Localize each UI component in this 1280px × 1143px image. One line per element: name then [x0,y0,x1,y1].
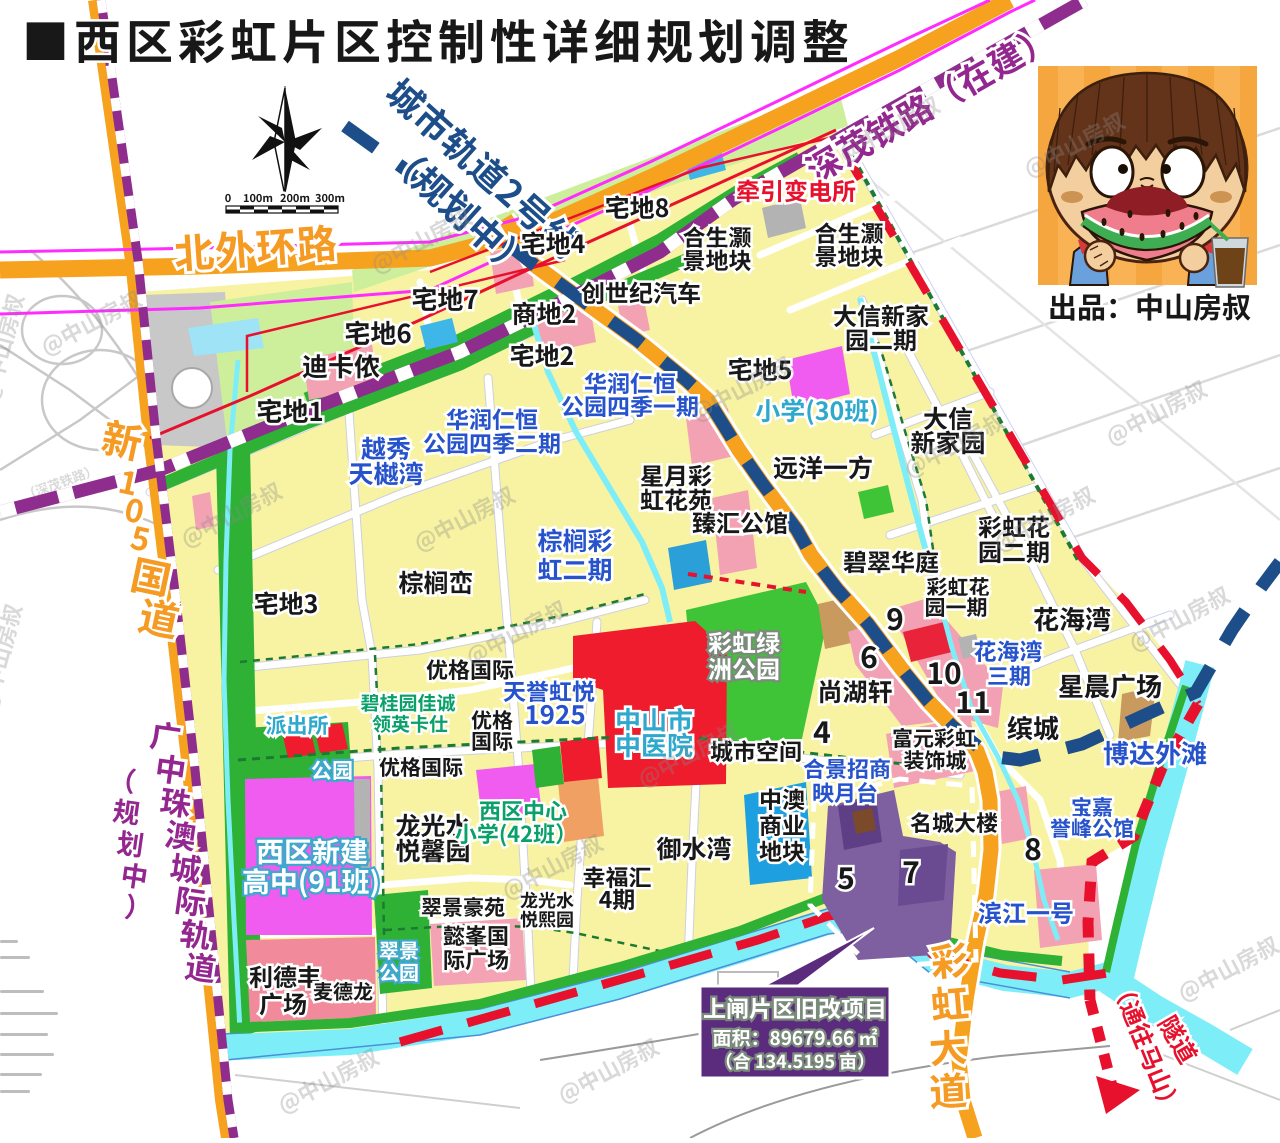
svg-text:广场: 广场 [259,985,307,1020]
svg-text:远洋一方: 远洋一方 [773,449,873,485]
svg-text:7: 7 [902,848,920,892]
svg-text:名城大楼: 名城大楼 [910,806,998,838]
svg-text:（合 134.5195 亩）: （合 134.5195 亩） [715,1048,875,1074]
svg-text:洲公园: 洲公园 [708,650,780,685]
svg-text:优格国际: 优格国际 [379,752,463,782]
svg-text:地块: 地块 [759,833,805,867]
svg-text:尚湖轩: 尚湖轩 [817,673,892,709]
svg-text:牵引变电所: 牵引变电所 [736,172,856,207]
svg-text:园二期: 园二期 [845,321,917,356]
svg-text:天樾湾: 天樾湾 [348,455,423,491]
svg-text:三期: 三期 [987,659,1031,691]
svg-text:上闸片区旧改项目: 上闸片区旧改项目 [703,990,887,1024]
svg-text:翠景豪苑: 翠景豪苑 [421,892,505,922]
svg-text:200m: 200m [280,190,310,206]
svg-text:派出所: 派出所 [266,710,329,740]
svg-text:园一期: 园一期 [925,592,988,622]
svg-text:300m: 300m [315,190,345,206]
svg-text:公园四季二期: 公园四季二期 [423,425,561,459]
svg-text:100m: 100m [243,190,273,206]
svg-text:道: 道 [182,941,219,990]
svg-text:虹二期: 虹二期 [537,551,612,587]
svg-text:国际: 国际 [471,726,513,756]
svg-text:公园四季一期: 公园四季一期 [561,388,699,422]
svg-text:北外环路: 北外环路 [172,211,340,280]
svg-text:11: 11 [955,678,990,722]
svg-text:御水湾: 御水湾 [656,830,731,866]
svg-text:悦熙园: 悦熙园 [520,906,574,932]
svg-text:碧翠华庭: 碧翠华庭 [843,543,939,578]
svg-text:花海湾: 花海湾 [1033,600,1111,637]
svg-text:）: ） [123,885,155,927]
svg-text:4: 4 [813,708,831,752]
svg-text:8: 8 [1024,825,1042,869]
svg-text:麦德龙: 麦德龙 [313,976,373,1005]
svg-text:臻汇公馆: 臻汇公馆 [692,504,788,539]
svg-text:4期: 4期 [599,881,636,915]
svg-text:星晨广场: 星晨广场 [1058,667,1162,704]
svg-text:小学(30班): 小学(30班) [755,392,878,428]
svg-text:公园: 公园 [379,957,419,986]
svg-text:宅地7: 宅地7 [411,280,478,317]
svg-text:宅地1: 宅地1 [256,392,323,429]
svg-text:棕榈峦: 棕榈峦 [398,564,473,600]
svg-text:道: 道 [928,1060,969,1117]
svg-text:6: 6 [860,633,878,677]
svg-text:誉峰公馆: 誉峰公馆 [1050,813,1134,843]
svg-text:宅地6: 宅地6 [344,314,411,351]
svg-text:际广场: 际广场 [443,943,509,975]
svg-text:高中(91班): 高中(91班) [242,861,380,901]
svg-text:宅地8: 宅地8 [605,189,670,225]
svg-text:领英卡仕: 领英卡仕 [372,710,448,737]
svg-text:博达外滩: 博达外滩 [1103,734,1207,771]
svg-text:滨江一号: 滨江一号 [978,894,1074,929]
svg-text:9: 9 [886,595,904,639]
svg-text:创世纪汽车: 创世纪汽车 [581,274,701,309]
svg-text:宅地4: 宅地4 [521,225,586,261]
svg-text:5: 5 [837,854,855,898]
svg-text:宅地2: 宅地2 [510,337,575,373]
svg-text:装饰城: 装饰城 [904,745,967,775]
svg-text:公园: 公园 [311,755,353,785]
svg-text:1925: 1925 [524,695,585,732]
svg-text:景地块: 景地块 [683,242,752,276]
svg-text:面积：89679.66 ㎡: 面积：89679.66 ㎡ [713,1024,878,1051]
svg-text:迪卡侬: 迪卡侬 [302,347,380,384]
svg-text:■西区彩虹片区控制性详细规划调整: ■西区彩虹片区控制性详细规划调整 [22,4,854,73]
svg-text:0: 0 [225,190,232,206]
svg-text:出品：中山房叔: 出品：中山房叔 [1048,285,1251,327]
svg-text:映月台: 映月台 [812,776,878,808]
svg-text:缤城: 缤城 [1007,709,1059,746]
svg-text:景地块: 景地块 [815,238,884,272]
svg-text:商地2: 商地2 [512,295,577,331]
svg-text:宅地3: 宅地3 [254,585,319,621]
